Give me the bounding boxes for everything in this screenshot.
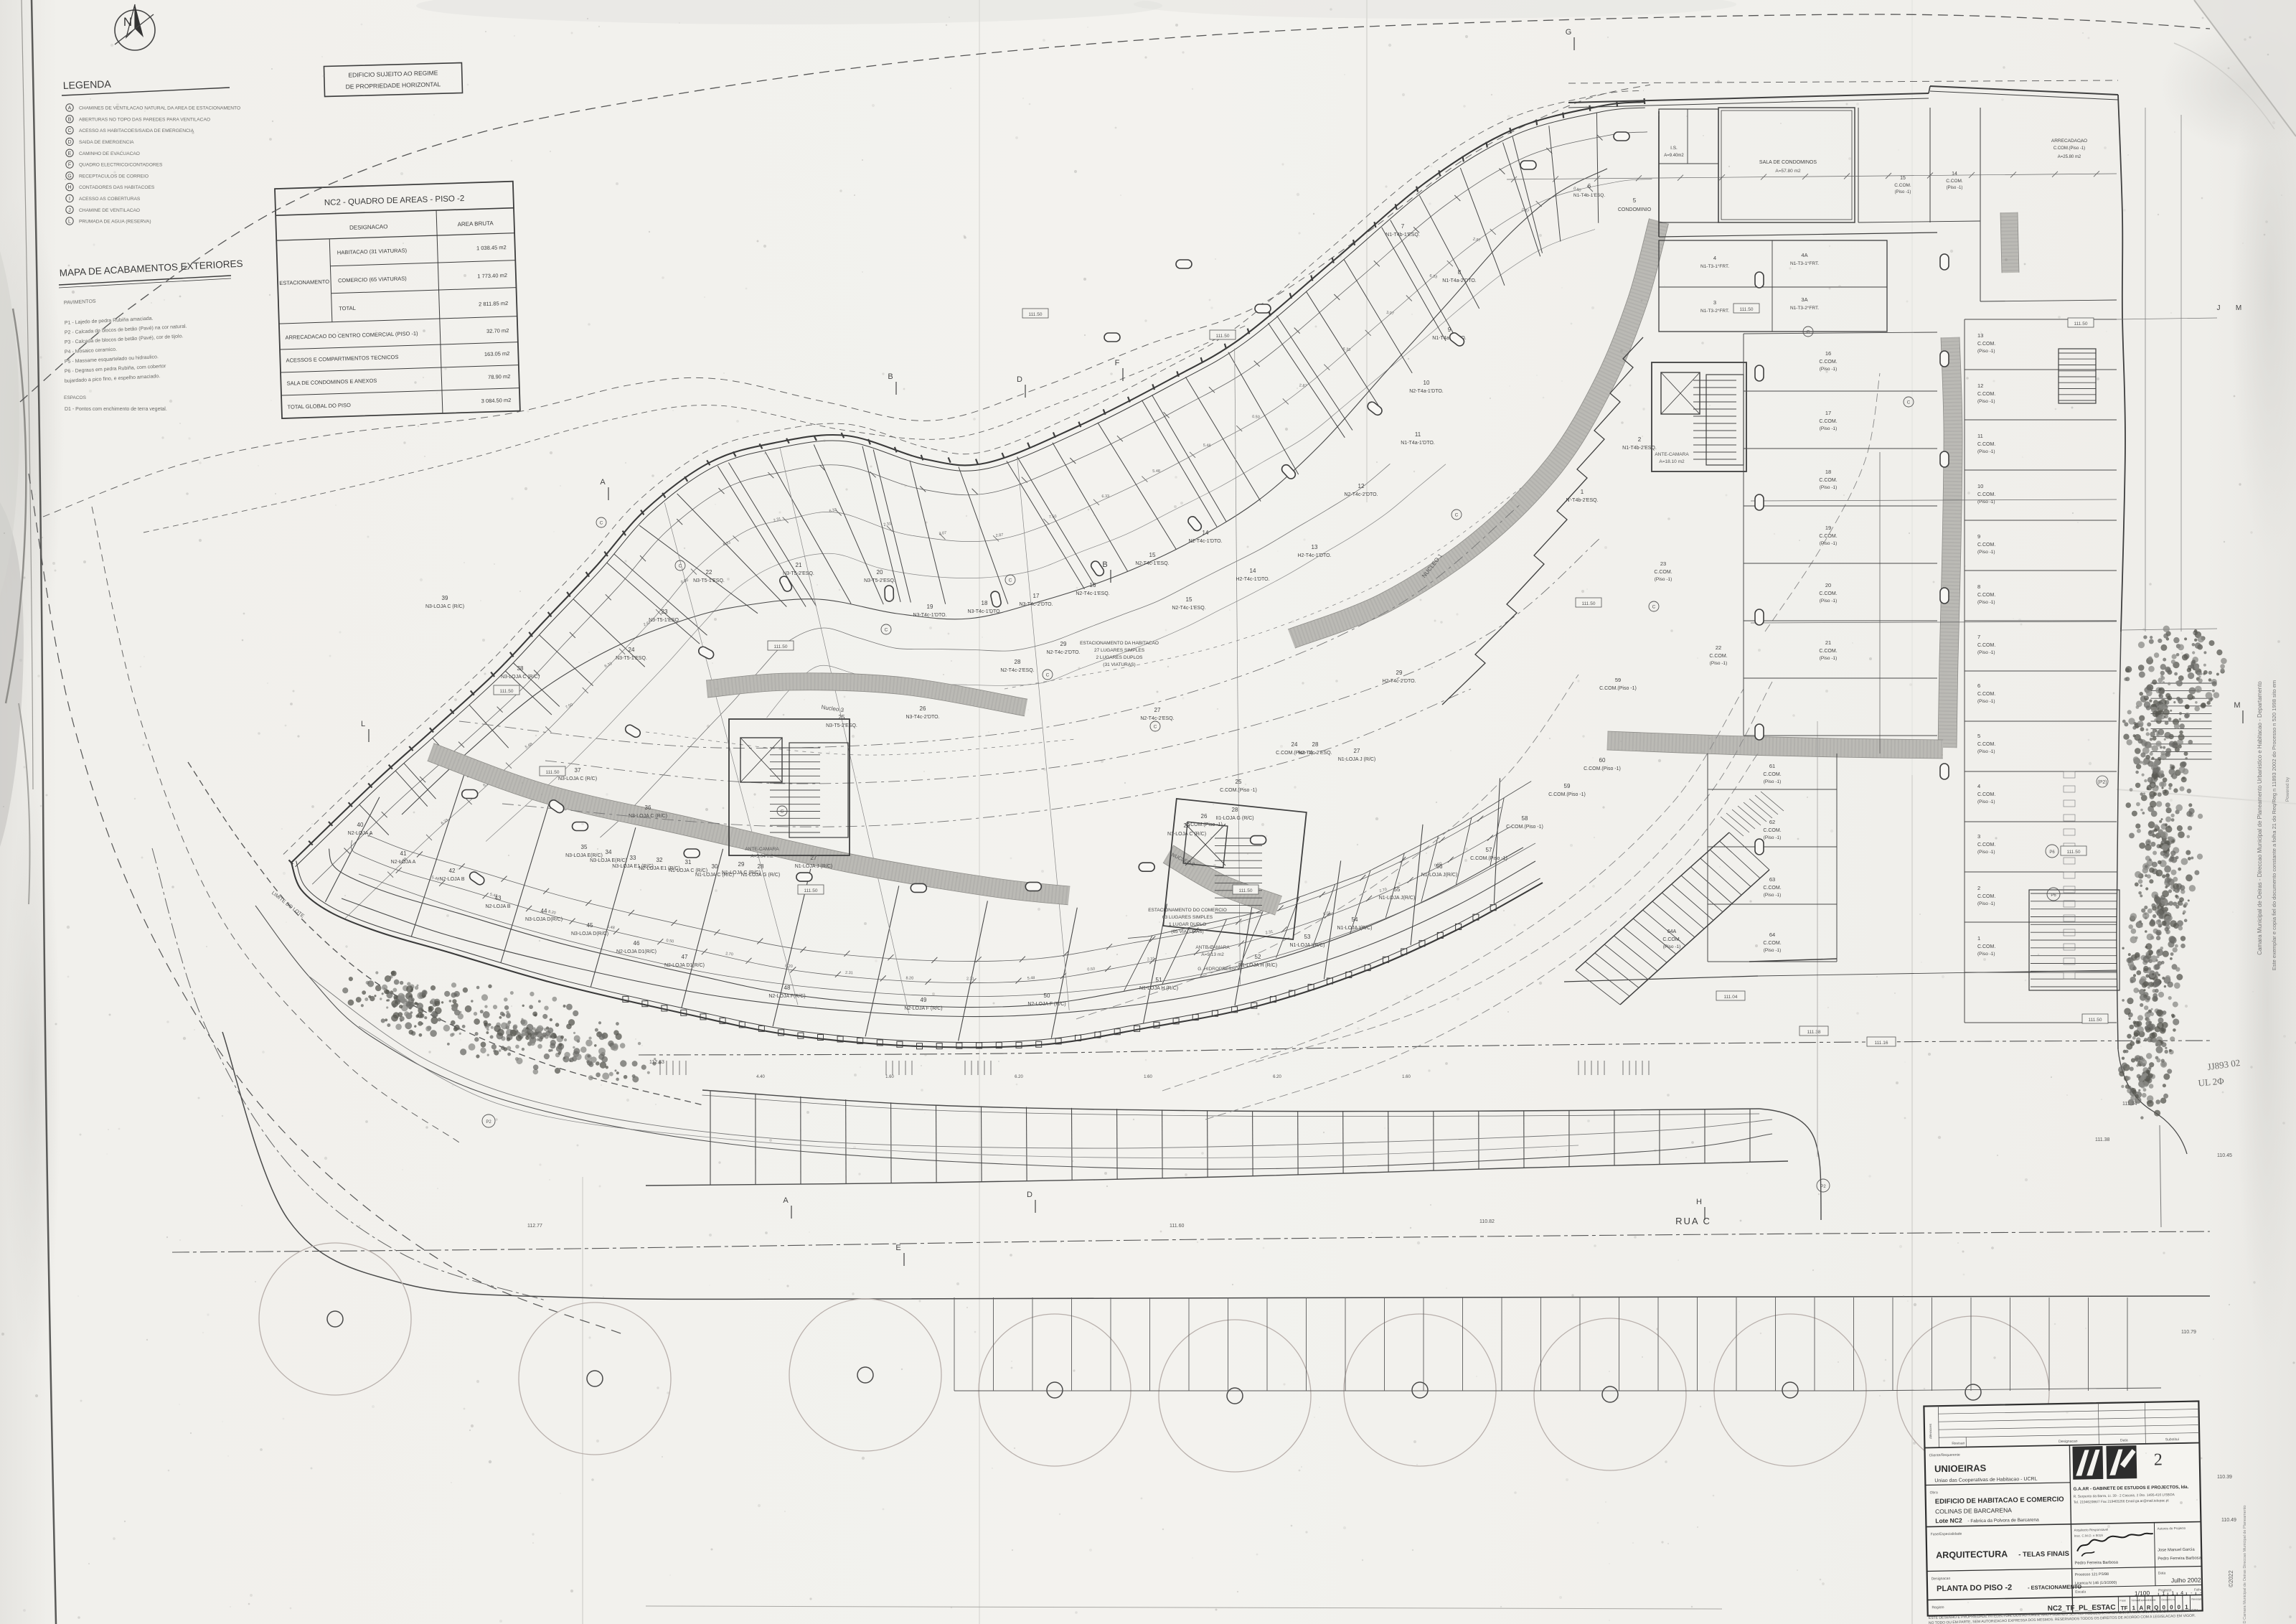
svg-text:Projecto: Projecto [2158, 1588, 2172, 1592]
svg-text:4.40: 4.40 [756, 1075, 765, 1079]
svg-text:111.04: 111.04 [1724, 995, 1738, 1000]
svg-text:111.38: 111.38 [1807, 1030, 1821, 1035]
svg-text:Cliente/Requerente: Cliente/Requerente [1929, 1453, 1960, 1458]
svg-text:1 038.45 m2: 1 038.45 m2 [476, 244, 507, 251]
svg-text:Registo: Registo [1932, 1605, 1944, 1610]
svg-text:CONDOMINIO: CONDOMINIO [1618, 207, 1652, 212]
svg-text:111.38: 111.38 [2095, 1137, 2109, 1142]
svg-text:N1-T3-1°FRT.: N1-T3-1°FRT. [1700, 263, 1729, 269]
svg-text:H: H [67, 185, 71, 190]
svg-text:N2-T4a-1'DTO.: N2-T4a-1'DTO. [1409, 389, 1444, 394]
svg-text:C.COM.: C.COM. [1763, 828, 1781, 833]
svg-text:1: 1 [1581, 489, 1584, 495]
svg-text:Designacao: Designacao [2059, 1440, 2078, 1444]
svg-text:D: D [1017, 375, 1022, 384]
svg-text:111.50: 111.50 [1582, 601, 1596, 606]
svg-text:N1-T4b-1'ESQ.: N1-T4b-1'ESQ. [1573, 193, 1605, 198]
svg-text:F: F [68, 163, 71, 168]
svg-text:12: 12 [1977, 382, 1983, 389]
svg-text:M: M [2234, 701, 2240, 710]
svg-text:N3-LOJA E(R/C): N3-LOJA E(R/C) [565, 853, 603, 858]
svg-text:4: 4 [1977, 783, 1980, 789]
svg-text:N1-T4b-2'ESQ.: N1-T4b-2'ESQ. [1622, 446, 1657, 451]
svg-text:C: C [1009, 578, 1012, 583]
svg-text:29: 29 [1396, 670, 1403, 676]
svg-text:N1-LOJA J (R/C): N1-LOJA J (R/C) [795, 864, 833, 869]
svg-text:ANTE-CAMARA: ANTE-CAMARA [1195, 945, 1230, 950]
svg-text:C.COM.: C.COM. [1709, 654, 1727, 659]
svg-text:44: 44 [541, 908, 547, 914]
svg-text:15: 15 [1900, 176, 1906, 181]
svg-text:7: 7 [1977, 634, 1980, 640]
svg-text:24: 24 [1291, 741, 1298, 748]
svg-text:A: A [600, 478, 606, 487]
svg-text:(Piso -1): (Piso -1) [1820, 367, 1838, 372]
svg-text:2.87: 2.87 [995, 533, 1003, 538]
svg-text:E: E [68, 151, 72, 156]
svg-text:32: 32 [657, 857, 663, 863]
svg-text:(Piso -1): (Piso -1) [1820, 485, 1838, 490]
svg-text:N2-T4c-2'ESQ.: N2-T4c-2'ESQ. [1140, 716, 1174, 721]
svg-text:110.45: 110.45 [2217, 1153, 2232, 1158]
svg-text:36: 36 [645, 804, 651, 811]
svg-text:14: 14 [1952, 172, 1957, 177]
svg-text:2: 2 [1638, 436, 1642, 443]
svg-text:57: 57 [1486, 847, 1492, 853]
svg-text:C: C [600, 521, 603, 526]
svg-text:C.COM.: C.COM. [1819, 360, 1837, 365]
svg-text:N1-LOJA I(R/C): N1-LOJA I(R/C) [1337, 926, 1372, 931]
svg-text:ANTE-CAMARA: ANTE-CAMARA [745, 847, 779, 852]
svg-text:1.60: 1.60 [1402, 1075, 1411, 1079]
svg-text:111.50: 111.50 [2089, 1018, 2102, 1023]
svg-text:N1-T3-2°FRT.: N1-T3-2°FRT. [1700, 308, 1729, 314]
svg-text:(Piso -1): (Piso -1) [1764, 779, 1782, 784]
svg-text:8.20: 8.20 [905, 976, 913, 980]
svg-text:8.20: 8.20 [785, 964, 793, 969]
svg-text:C.COM.: C.COM. [1977, 944, 1995, 949]
svg-text:Julho 2002: Julho 2002 [2171, 1577, 2201, 1585]
svg-text:ABERTURAS NO TOPO DAS PAREDES: ABERTURAS NO TOPO DAS PAREDES PARA VENTI… [79, 117, 210, 122]
svg-text:N3-T5-2'ESQ.: N3-T5-2'ESQ. [864, 578, 895, 583]
svg-text:59: 59 [1564, 783, 1571, 789]
svg-text:ANTE-CAMARA: ANTE-CAMARA [1655, 452, 1689, 457]
svg-text:CAMINHO DE EVACUACAO: CAMINHO DE EVACUACAO [79, 151, 140, 156]
svg-text:N1-LOJA J (R/C): N1-LOJA J (R/C) [1338, 757, 1376, 762]
svg-text:2.31: 2.31 [845, 971, 853, 976]
svg-text:(Piso -1): (Piso -1) [1977, 650, 1995, 655]
svg-text:16: 16 [1090, 582, 1096, 588]
svg-text:3A: 3A [1801, 296, 1807, 303]
svg-text:G. HIDROPRESSOR: G. HIDROPRESSOR [1198, 967, 1242, 972]
svg-text:(Piso -1): (Piso -1) [1710, 661, 1728, 666]
svg-text:3 084.50 m2: 3 084.50 m2 [481, 397, 512, 404]
svg-text:11: 11 [1415, 431, 1421, 438]
svg-text:111.50: 111.50 [1216, 334, 1230, 339]
svg-text:B: B [1102, 560, 1107, 569]
svg-text:Arquitecto Responsavel: Arquitecto Responsavel [2074, 1528, 2109, 1532]
svg-text:10: 10 [1977, 483, 1983, 489]
svg-text:C.COM.: C.COM. [1894, 183, 1911, 188]
svg-text:(Piso -1): (Piso -1) [1977, 449, 1995, 454]
svg-text:C: C [1046, 673, 1050, 678]
svg-text:J: J [68, 208, 71, 213]
svg-text:D: D [67, 140, 71, 145]
svg-text:LEGENDA: LEGENDA [63, 78, 112, 91]
svg-text:N3-T5-2'ESQ.: N3-T5-2'ESQ. [826, 723, 857, 728]
svg-text:(Piso -1): (Piso -1) [1764, 948, 1782, 953]
svg-text:Revisao: Revisao [2191, 1598, 2201, 1601]
svg-text:A: A [783, 1196, 789, 1205]
svg-text:20: 20 [1825, 582, 1831, 588]
svg-text:35: 35 [581, 844, 588, 850]
svg-text:(Piso -1): (Piso -1) [1977, 550, 1995, 555]
svg-text:N2-T4c-2'ESQ.: N2-T4c-2'ESQ. [1000, 668, 1034, 673]
svg-text:(65 VIATURAS): (65 VIATURAS) [1171, 929, 1203, 934]
svg-text:CHAMINE DE VENTILACAO: CHAMINE DE VENTILACAO [79, 208, 140, 213]
svg-text:©2022: ©2022 [2228, 1570, 2234, 1587]
svg-text:163.05 m2: 163.05 m2 [484, 350, 510, 357]
svg-text:Alteracoes: Alteracoes [1929, 1423, 1932, 1439]
svg-text:COLINAS DE BARCARENA: COLINAS DE BARCARENA [1935, 1506, 2012, 1515]
svg-text:N2-LOJA B: N2-LOJA B [439, 877, 464, 882]
svg-text:26: 26 [1201, 813, 1208, 820]
svg-text:C.COM.: C.COM. [1819, 419, 1837, 424]
svg-text:58: 58 [1522, 815, 1528, 822]
svg-text:Insc. C.M.O. n 5019: Insc. C.M.O. n 5019 [2074, 1534, 2104, 1538]
svg-text:N2-LOJA D1(R/C): N2-LOJA D1(R/C) [616, 949, 657, 954]
svg-text:ACESSO AS HABITACOES/SAIDA DE: ACESSO AS HABITACOES/SAIDA DE EMERGENCIA [79, 128, 194, 133]
svg-text:C.COM.: C.COM. [1977, 894, 1995, 899]
svg-text:1 LUGAR DUPLO: 1 LUGAR DUPLO [1169, 922, 1206, 927]
svg-text:25: 25 [1236, 779, 1242, 785]
svg-text:27: 27 [1354, 748, 1360, 754]
svg-text:C.COM.: C.COM. [1819, 649, 1837, 654]
svg-text:(Piso -1): (Piso -1) [1977, 749, 1995, 754]
svg-text:4A: 4A [1801, 252, 1807, 258]
svg-text:N3-T5-1'ESQ.: N3-T5-1'ESQ. [616, 656, 647, 661]
svg-text:H2-T4c-2'DTO.: H2-T4c-2'DTO. [1382, 679, 1416, 684]
svg-text:ACESSO AS COBERTURAS: ACESSO AS COBERTURAS [79, 197, 141, 202]
svg-text:(Piso -1): (Piso -1) [1895, 190, 1911, 194]
svg-text:(Piso -1): (Piso -1) [1977, 799, 1995, 804]
svg-text:63: 63 [1769, 876, 1775, 883]
svg-text:Escala: Escala [2075, 1590, 2086, 1594]
svg-text:111.50: 111.50 [1029, 312, 1043, 317]
svg-text:UNIOEIRAS: UNIOEIRAS [1934, 1463, 1987, 1474]
svg-text:(Piso -1): (Piso -1) [1977, 699, 1995, 704]
svg-text:(Piso -1): (Piso -1) [1764, 893, 1782, 898]
svg-text:C: C [885, 628, 888, 633]
svg-text:(Piso -1): (Piso -1) [1820, 426, 1838, 431]
svg-text:52: 52 [1255, 954, 1261, 960]
svg-text:N2-LOJA B: N2-LOJA B [485, 904, 510, 909]
svg-text:G: G [1566, 28, 1572, 37]
svg-text:C.COM.: C.COM. [1977, 692, 1995, 697]
svg-text:C.COM.: C.COM. [1819, 478, 1837, 483]
svg-text:N3-LOJA E(R/C): N3-LOJA E(R/C) [590, 858, 627, 863]
svg-text:N3-LOJA C (R/C): N3-LOJA C (R/C) [558, 776, 597, 782]
svg-text:A=18.10 m2: A=18.10 m2 [1659, 459, 1685, 464]
svg-text:C: C [679, 564, 682, 569]
svg-text:5.48: 5.48 [1027, 976, 1035, 981]
svg-text:Desenho n: Desenho n [2161, 1598, 2174, 1601]
svg-text:6.20: 6.20 [1015, 1075, 1023, 1079]
svg-text:110.39: 110.39 [2217, 1475, 2232, 1480]
svg-text:(Piso -1): (Piso -1) [1977, 901, 1995, 906]
svg-text:Autores do Projecto: Autores do Projecto [2158, 1526, 2186, 1531]
svg-text:H2-T4c-1'DTO.: H2-T4c-1'DTO. [1297, 553, 1331, 558]
svg-text:N'-T4b-2'ESQ.: N'-T4b-2'ESQ. [1566, 498, 1598, 503]
svg-text:C.COM.: C.COM. [1819, 534, 1837, 539]
svg-text:25: 25 [839, 714, 845, 721]
svg-text:Fase: Fase [2119, 1599, 2126, 1602]
svg-text:22: 22 [706, 569, 712, 576]
svg-text:J: J [2217, 304, 2221, 312]
svg-text:C.COM.(Piso -1): C.COM.(Piso -1) [1276, 751, 1313, 756]
svg-text:50: 50 [1044, 992, 1050, 999]
svg-text:6.33: 6.33 [1101, 494, 1109, 499]
svg-text:C.COM.: C.COM. [1977, 742, 1995, 747]
svg-text:111.50: 111.50 [1740, 307, 1754, 312]
svg-text:17: 17 [1033, 593, 1040, 599]
svg-text:N3-T5-2'ESQ.: N3-T5-2'ESQ. [783, 571, 814, 576]
svg-text:9: 9 [1448, 327, 1452, 333]
svg-text:54: 54 [1352, 916, 1358, 923]
svg-text:39: 39 [442, 595, 448, 601]
svg-text:(Piso -1): (Piso -1) [1655, 577, 1672, 582]
svg-text:38: 38 [517, 665, 524, 672]
svg-text:UL 2Φ: UL 2Φ [2198, 1075, 2225, 1088]
svg-text:C.COM.: C.COM. [1819, 591, 1837, 596]
svg-text:D Camara Municipal de Oeiras: D Camara Municipal de Oeiras Direccao Mu… [2243, 1506, 2247, 1624]
svg-text:2 LUGARES DUPLOS: 2 LUGARES DUPLOS [1096, 655, 1143, 660]
svg-text:C.COM.: C.COM. [1763, 941, 1781, 946]
svg-text:N: N [123, 15, 132, 29]
svg-text:15: 15 [1186, 596, 1192, 603]
svg-text:H: H [1696, 1198, 1702, 1206]
svg-text:110.82: 110.82 [1479, 1219, 1495, 1224]
svg-text:28: 28 [1232, 807, 1238, 813]
svg-text:C.COM.(Piso -1): C.COM.(Piso -1) [1220, 788, 1257, 793]
svg-text:N3-T4c-2'DTO.: N3-T4c-2'DTO. [905, 715, 939, 720]
svg-text:C.COM.: C.COM. [1977, 342, 1995, 347]
svg-text:N3-T4c-1'DTO.: N3-T4c-1'DTO. [913, 613, 946, 618]
svg-text:111.50: 111.50 [1239, 888, 1253, 893]
svg-text:11: 11 [1977, 433, 1983, 439]
svg-text:C.COM.: C.COM. [1977, 392, 1995, 397]
svg-text:0.50: 0.50 [1087, 967, 1095, 972]
svg-text:34: 34 [606, 849, 612, 855]
svg-text:N1-T3-1°FRT.: N1-T3-1°FRT. [1790, 261, 1819, 266]
svg-text:RECEPTACULOS DE CORREIO: RECEPTACULOS DE CORREIO [79, 174, 149, 179]
svg-text:61: 61 [1769, 763, 1775, 769]
svg-text:Pedro Ferreira Barbosa: Pedro Ferreira Barbosa [2158, 1556, 2201, 1561]
svg-text:Processo 121 PS/98: Processo 121 PS/98 [2075, 1572, 2109, 1577]
svg-text:55: 55 [1394, 886, 1401, 893]
svg-text:N1-LOJA J(R/C): N1-LOJA J(R/C) [1379, 896, 1416, 901]
svg-text:M: M [2236, 304, 2241, 312]
svg-text:2 811.85 m2: 2 811.85 m2 [479, 300, 508, 307]
svg-text:C.COM.: C.COM. [1763, 886, 1781, 891]
svg-text:19: 19 [927, 604, 933, 610]
svg-text:D1 - Pontos com enchimento de: D1 - Pontos com enchimento de terra vege… [65, 407, 167, 412]
svg-text:E: E [895, 1244, 900, 1252]
svg-text:17: 17 [1825, 410, 1831, 416]
svg-text:N2-T4c-1'DTO.: N2-T4c-1'DTO. [1188, 539, 1222, 544]
svg-text:Obra: Obra [1930, 1491, 1938, 1495]
svg-text:F: F [1115, 359, 1120, 367]
svg-text:42: 42 [449, 868, 456, 874]
svg-text:33: 33 [630, 855, 636, 861]
svg-text:C: C [1652, 605, 1656, 610]
svg-text:N1-LOJA C (R/C): N1-LOJA C (R/C) [1167, 832, 1206, 837]
svg-text:47: 47 [682, 954, 688, 960]
svg-text:Revisao: Revisao [1952, 1442, 1965, 1446]
svg-text:H2-T4c-1'DTO.: H2-T4c-1'DTO. [1236, 577, 1269, 582]
svg-text:5: 5 [1633, 197, 1637, 204]
svg-text:7: 7 [1401, 223, 1405, 230]
svg-text:C.COM.(Piso -1): C.COM.(Piso -1) [1506, 825, 1543, 830]
svg-text:C.COM.: C.COM. [1977, 643, 1995, 648]
svg-text:21: 21 [1825, 639, 1831, 646]
svg-text:60: 60 [1599, 757, 1606, 764]
svg-text:111.50: 111.50 [2067, 850, 2081, 855]
svg-text:5.48: 5.48 [1203, 443, 1211, 448]
svg-text:2.70: 2.70 [725, 952, 733, 957]
svg-text:SAIDA DE EMERGENCIA: SAIDA DE EMERGENCIA [79, 140, 134, 145]
svg-text:0.50: 0.50 [1252, 415, 1260, 420]
svg-text:32.70 m2: 32.70 m2 [486, 327, 509, 334]
svg-text:111.50: 111.50 [804, 888, 818, 893]
svg-text:C: C [781, 809, 784, 815]
svg-text:Licenca N 146 (1/3/2000): Licenca N 146 (1/3/2000) [2075, 1581, 2117, 1586]
svg-text:111.50: 111.50 [774, 644, 788, 649]
svg-text:6.20: 6.20 [1273, 1075, 1281, 1079]
svg-text:23: 23 [1660, 560, 1666, 567]
svg-text:C.COM.(Piso -1): C.COM.(Piso -1) [1599, 686, 1637, 691]
svg-text:28: 28 [1312, 741, 1319, 748]
svg-text:(31 VIATURAS): (31 VIATURAS) [1103, 662, 1135, 667]
svg-text:(Piso -1): (Piso -1) [1977, 600, 1995, 605]
svg-text:N2-T4c-2'DTO.: N2-T4c-2'DTO. [1046, 650, 1080, 655]
svg-text:28: 28 [1015, 659, 1021, 665]
svg-text:N3-LOJA C (R/C): N3-LOJA C (R/C) [629, 814, 667, 819]
svg-text:Este exemplar e copia fiel do: Este exemplar e copia fiel do documento … [2271, 680, 2277, 970]
svg-text:46: 46 [634, 940, 640, 947]
svg-text:Data: Data [2120, 1438, 2128, 1442]
svg-text:13: 13 [1312, 544, 1318, 550]
svg-text:4: 4 [1713, 255, 1716, 261]
svg-text:N1-T3-2°FRT.: N1-T3-2°FRT. [1790, 305, 1819, 311]
svg-text:C: C [1907, 400, 1911, 405]
svg-text:59: 59 [1615, 677, 1621, 683]
svg-text:3: 3 [1977, 833, 1980, 840]
svg-text:N3-LOJA C (R/C): N3-LOJA C (R/C) [501, 675, 540, 680]
svg-text:6: 6 [1588, 183, 1591, 189]
svg-text:N3-LOJA D(R/C): N3-LOJA D(R/C) [571, 931, 608, 937]
svg-text:(Piso -1): (Piso -1) [1977, 850, 1995, 855]
svg-text:2: 2 [1977, 885, 1980, 891]
svg-text:C.COM.: C.COM. [1977, 543, 1995, 548]
svg-text:N3-LOJA D(R/C): N3-LOJA D(R/C) [525, 917, 563, 922]
svg-text:QUADRO ELECTRICO/CONTADORES: QUADRO ELECTRICO/CONTADORES [79, 163, 163, 168]
svg-text:B: B [68, 117, 72, 122]
svg-text:2.31: 2.31 [966, 977, 974, 981]
svg-text:ESTACIONAMENTO DA HABITACAO: ESTACIONAMENTO DA HABITACAO [1080, 641, 1159, 646]
svg-text:2: 2 [2154, 1450, 2163, 1469]
svg-text:23: 23 [662, 609, 668, 615]
svg-text:L: L [361, 720, 365, 728]
svg-text:29: 29 [738, 861, 745, 868]
svg-text:1.60: 1.60 [885, 1075, 894, 1079]
svg-text:C.COM.(Piso -1): C.COM.(Piso -1) [1185, 822, 1223, 827]
svg-text:N2-T4c-1'ESQ.: N2-T4c-1'ESQ. [1135, 561, 1169, 566]
svg-text:C.COM.: C.COM. [1977, 792, 1995, 797]
svg-text:G: G [67, 174, 71, 179]
svg-text:64: 64 [1769, 931, 1775, 938]
svg-text:ESTACIONAMENTO DO COMERCIO: ESTACIONAMENTO DO COMERCIO [1148, 908, 1227, 913]
svg-text:56: 56 [1436, 863, 1443, 870]
svg-text:L: L [68, 220, 71, 225]
svg-text:N1-T4a-1'DTO.: N1-T4a-1'DTO. [1401, 441, 1435, 446]
svg-text:I.S.: I.S. [1670, 146, 1678, 151]
svg-text:C: C [1154, 725, 1157, 730]
svg-text:PLANTA DO PISO -2: PLANTA DO PISO -2 [1937, 1583, 2012, 1593]
svg-text:C.COM.: C.COM. [1977, 842, 1995, 848]
svg-text:18: 18 [1825, 469, 1831, 475]
svg-text:1.60: 1.60 [1144, 1075, 1152, 1079]
svg-text:PRUMADA DE AGUA (RESERVA): PRUMADA DE AGUA (RESERVA) [79, 220, 151, 225]
svg-text:N2-T4c-1'ESQ.: N2-T4c-1'ESQ. [1172, 606, 1205, 611]
svg-text:111.50: 111.50 [2074, 321, 2088, 327]
svg-text:P6: P6 [2051, 893, 2056, 898]
svg-text:18: 18 [982, 600, 988, 606]
svg-text:28: 28 [758, 863, 764, 870]
svg-text:P2: P2 [486, 1120, 491, 1125]
svg-text:A=9.13 m2: A=9.13 m2 [1201, 952, 1224, 957]
svg-text:ESPACOS: ESPACOS [64, 395, 87, 400]
svg-text:C.COM.: C.COM. [1977, 492, 1995, 497]
svg-text:51: 51 [1156, 977, 1162, 983]
svg-text:112.63: 112.63 [649, 1060, 664, 1065]
svg-text:9: 9 [1977, 533, 1980, 540]
svg-text:26: 26 [920, 705, 926, 712]
svg-text:N1-T4a-2'DTO.: N1-T4a-2'DTO. [1442, 278, 1477, 283]
svg-text:6: 6 [1977, 682, 1980, 689]
svg-text:5.48: 5.48 [1152, 469, 1160, 474]
svg-text:13: 13 [1977, 332, 1983, 339]
svg-text:N1-LOJA I(R/C): N1-LOJA I(R/C) [1289, 943, 1325, 948]
svg-text:ARQUITECTURA: ARQUITECTURA [1936, 1549, 2008, 1560]
svg-text:N2-T4c-2'DTO.: N2-T4c-2'DTO. [1344, 492, 1378, 497]
svg-text:Pedro Ferreira Barbosa: Pedro Ferreira Barbosa [2074, 1561, 2118, 1566]
svg-text:P6: P6 [2049, 850, 2055, 855]
svg-text:111.50: 111.50 [500, 689, 514, 694]
svg-text:A=5.04 m2: A=5.04 m2 [751, 854, 773, 859]
svg-text:Jose Manuel Garcia: Jose Manuel Garcia [2158, 1548, 2195, 1553]
svg-text:N2-LOJA F (R/C): N2-LOJA F (R/C) [904, 1006, 942, 1011]
svg-text:1 773.40 m2: 1 773.40 m2 [477, 272, 507, 279]
svg-text:C.COM.: C.COM. [1977, 442, 1995, 447]
svg-text:15: 15 [1149, 552, 1156, 558]
svg-text:A=9.40m2: A=9.40m2 [1664, 154, 1684, 158]
svg-text:111.60: 111.60 [1170, 1224, 1184, 1229]
svg-text:5: 5 [1977, 733, 1980, 739]
svg-text:N3-T4c-2'DTO.: N3-T4c-2'DTO. [1019, 602, 1053, 607]
svg-text:I: I [69, 197, 70, 202]
svg-text:C.COM.(Piso -1): C.COM.(Piso -1) [2053, 146, 2085, 151]
